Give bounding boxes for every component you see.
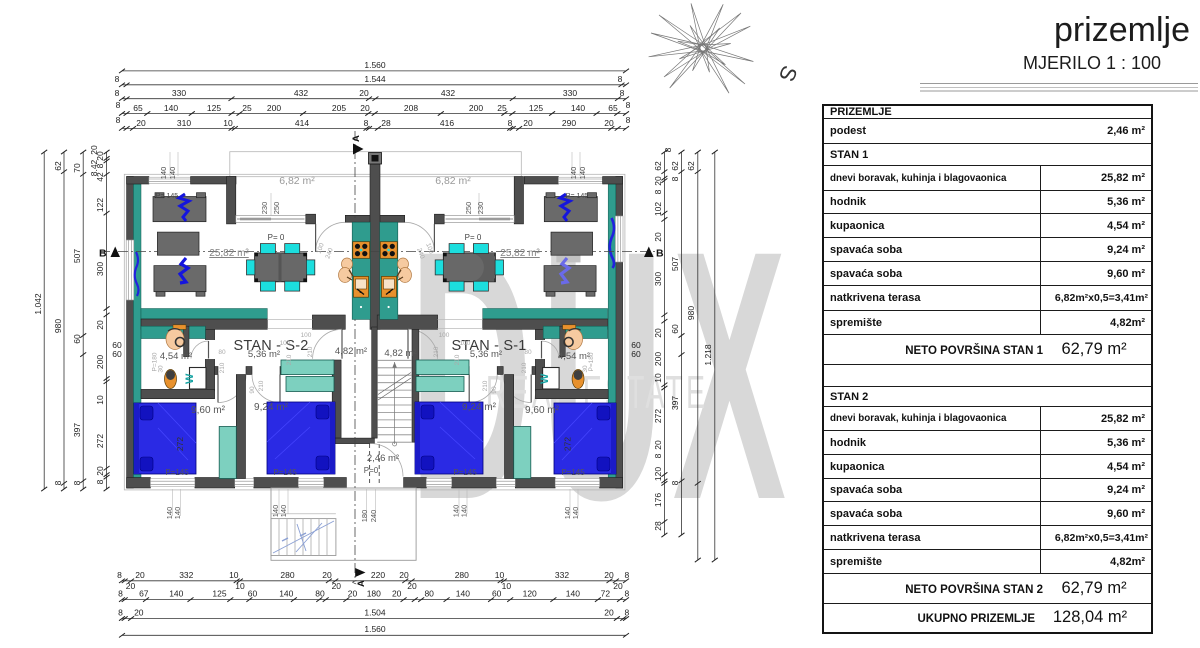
svg-text:9,24 m²: 9,24 m² bbox=[462, 402, 497, 413]
svg-text:P= 0: P= 0 bbox=[268, 233, 285, 242]
svg-text:8: 8 bbox=[364, 118, 369, 128]
svg-text:20: 20 bbox=[604, 118, 614, 128]
svg-text:8: 8 bbox=[653, 453, 663, 458]
svg-text:210: 210 bbox=[219, 362, 226, 373]
svg-text:180: 180 bbox=[367, 589, 381, 599]
svg-text:20: 20 bbox=[348, 589, 358, 599]
svg-text:250: 250 bbox=[272, 202, 281, 215]
svg-text:8: 8 bbox=[670, 176, 680, 181]
svg-text:140: 140 bbox=[279, 505, 288, 518]
svg-text:140: 140 bbox=[456, 589, 470, 599]
svg-text:P=145: P=145 bbox=[273, 468, 297, 477]
svg-text:8: 8 bbox=[118, 608, 123, 618]
svg-text:20: 20 bbox=[399, 570, 409, 580]
svg-text:330: 330 bbox=[563, 88, 577, 98]
svg-text:140: 140 bbox=[460, 505, 469, 518]
svg-text:140: 140 bbox=[571, 507, 580, 520]
svg-text:30: 30 bbox=[158, 365, 165, 373]
svg-text:20: 20 bbox=[360, 103, 370, 113]
svg-text:240: 240 bbox=[324, 247, 334, 260]
svg-text:<: < bbox=[352, 578, 357, 587]
svg-text:120: 120 bbox=[653, 467, 663, 481]
svg-text:125: 125 bbox=[529, 103, 543, 113]
svg-text:140: 140 bbox=[571, 103, 585, 113]
svg-text:20: 20 bbox=[95, 466, 105, 476]
svg-text:5,36 m²: 5,36 m² bbox=[470, 349, 502, 360]
svg-text:P=0: P=0 bbox=[364, 466, 379, 475]
svg-text:290: 290 bbox=[562, 118, 576, 128]
svg-text:1.042: 1.042 bbox=[33, 293, 43, 315]
svg-text:140: 140 bbox=[173, 507, 182, 520]
svg-text:90: 90 bbox=[249, 386, 256, 394]
svg-text:416: 416 bbox=[440, 118, 454, 128]
svg-text:250: 250 bbox=[464, 202, 473, 215]
svg-text:A: A bbox=[356, 580, 367, 587]
svg-text:6,82 m²: 6,82 m² bbox=[279, 175, 315, 187]
svg-text:210: 210 bbox=[482, 380, 489, 391]
svg-text:140: 140 bbox=[279, 589, 293, 599]
svg-text:1.560: 1.560 bbox=[364, 624, 386, 634]
svg-text:30: 30 bbox=[582, 365, 589, 373]
svg-text:140: 140 bbox=[578, 167, 587, 180]
svg-text:1.218: 1.218 bbox=[703, 344, 713, 366]
svg-text:397: 397 bbox=[72, 423, 82, 437]
svg-text:25,82 m²: 25,82 m² bbox=[500, 248, 540, 259]
svg-text:140: 140 bbox=[168, 167, 177, 180]
svg-text:20: 20 bbox=[653, 232, 663, 242]
svg-text:280: 280 bbox=[280, 570, 294, 580]
svg-text:20: 20 bbox=[613, 581, 623, 591]
svg-text:P=145: P=145 bbox=[165, 468, 189, 477]
svg-text:100: 100 bbox=[439, 332, 450, 339]
svg-text:1.560: 1.560 bbox=[364, 60, 386, 70]
svg-text:200: 200 bbox=[267, 103, 281, 113]
svg-text:272: 272 bbox=[563, 437, 573, 451]
svg-text:414: 414 bbox=[295, 118, 309, 128]
svg-text:20: 20 bbox=[653, 440, 663, 450]
svg-text:28: 28 bbox=[653, 521, 663, 531]
svg-text:9,60 m²: 9,60 m² bbox=[525, 405, 560, 416]
svg-text:100: 100 bbox=[460, 340, 471, 347]
svg-text:200: 200 bbox=[653, 352, 663, 366]
svg-text:272: 272 bbox=[653, 409, 663, 423]
svg-text:272: 272 bbox=[95, 434, 105, 448]
svg-text:8: 8 bbox=[618, 74, 623, 84]
svg-text:8: 8 bbox=[508, 118, 513, 128]
svg-text:90: 90 bbox=[491, 386, 498, 394]
svg-text:6,82 m²: 6,82 m² bbox=[435, 175, 471, 187]
svg-text:8.42: 8.42 bbox=[89, 159, 99, 176]
svg-text:8: 8 bbox=[626, 100, 631, 110]
svg-text:25,82 m²: 25,82 m² bbox=[209, 248, 249, 259]
svg-text:220: 220 bbox=[371, 570, 385, 580]
svg-text:125: 125 bbox=[207, 103, 221, 113]
svg-text:120: 120 bbox=[523, 589, 537, 599]
svg-text:140: 140 bbox=[566, 589, 580, 599]
svg-text:10: 10 bbox=[95, 395, 105, 405]
svg-text:9,24 m²: 9,24 m² bbox=[254, 402, 289, 413]
svg-text:8: 8 bbox=[625, 589, 630, 599]
svg-text:5,36 m²: 5,36 m² bbox=[248, 349, 280, 360]
svg-text:176: 176 bbox=[653, 493, 663, 507]
svg-text:60: 60 bbox=[112, 349, 122, 359]
svg-text:20: 20 bbox=[604, 570, 614, 580]
svg-text:80: 80 bbox=[424, 589, 434, 599]
svg-text:332: 332 bbox=[179, 570, 193, 580]
svg-text:330: 330 bbox=[172, 88, 186, 98]
svg-text:25: 25 bbox=[497, 103, 507, 113]
svg-text:200: 200 bbox=[95, 355, 105, 369]
svg-text:210: 210 bbox=[521, 362, 528, 373]
svg-text:70: 70 bbox=[72, 163, 82, 173]
svg-text:8: 8 bbox=[115, 88, 120, 98]
svg-text:8: 8 bbox=[95, 479, 105, 484]
svg-text:62: 62 bbox=[670, 161, 680, 171]
svg-text:60: 60 bbox=[72, 334, 82, 344]
svg-text:210: 210 bbox=[433, 346, 440, 357]
svg-text:332: 332 bbox=[555, 570, 569, 580]
svg-text:80: 80 bbox=[218, 349, 226, 356]
svg-text:8: 8 bbox=[116, 115, 121, 125]
svg-text:200: 200 bbox=[469, 103, 483, 113]
svg-text:10: 10 bbox=[653, 373, 663, 383]
svg-text:507: 507 bbox=[72, 249, 82, 263]
svg-text:25: 25 bbox=[242, 103, 252, 113]
svg-text:8: 8 bbox=[115, 74, 120, 84]
svg-text:122: 122 bbox=[95, 198, 105, 212]
svg-text:60: 60 bbox=[631, 349, 641, 359]
svg-text:20: 20 bbox=[392, 589, 402, 599]
svg-text:20: 20 bbox=[523, 118, 533, 128]
svg-text:240: 240 bbox=[369, 510, 378, 523]
svg-text:20: 20 bbox=[134, 608, 144, 618]
svg-text:205: 205 bbox=[332, 103, 346, 113]
svg-text:65: 65 bbox=[133, 103, 143, 113]
svg-text:20: 20 bbox=[653, 328, 663, 338]
svg-text:102: 102 bbox=[653, 202, 663, 216]
svg-text:62: 62 bbox=[653, 161, 663, 171]
svg-text:8: 8 bbox=[116, 100, 121, 110]
svg-text:230: 230 bbox=[476, 202, 485, 215]
svg-text:208: 208 bbox=[404, 103, 418, 113]
svg-text:1.504: 1.504 bbox=[364, 608, 386, 618]
svg-text:P=145: P=145 bbox=[453, 468, 477, 477]
svg-text:397: 397 bbox=[670, 396, 680, 410]
svg-text:P= 0: P= 0 bbox=[465, 233, 482, 242]
svg-text:8: 8 bbox=[117, 570, 122, 580]
svg-text:20: 20 bbox=[653, 176, 663, 186]
svg-text:4,54 m²: 4,54 m² bbox=[160, 351, 192, 362]
svg-text:20: 20 bbox=[135, 570, 145, 580]
svg-text:S: S bbox=[774, 62, 803, 85]
svg-text:60: 60 bbox=[248, 589, 258, 599]
svg-text:8: 8 bbox=[653, 189, 663, 194]
svg-text:P=145: P=145 bbox=[561, 468, 585, 477]
svg-text:8: 8 bbox=[625, 608, 630, 618]
svg-text:65: 65 bbox=[608, 103, 618, 113]
svg-text:300: 300 bbox=[653, 272, 663, 286]
svg-text:P=180: P=180 bbox=[588, 352, 595, 371]
svg-text:100: 100 bbox=[280, 340, 291, 347]
svg-text:310: 310 bbox=[177, 118, 191, 128]
svg-text:507: 507 bbox=[670, 257, 680, 271]
svg-text:4,54 m²: 4,54 m² bbox=[558, 351, 590, 362]
svg-text:140: 140 bbox=[569, 167, 578, 180]
svg-text:1.544: 1.544 bbox=[364, 74, 386, 84]
svg-text:P= 145: P= 145 bbox=[566, 193, 588, 200]
svg-text:60: 60 bbox=[492, 589, 502, 599]
svg-text:W: W bbox=[539, 373, 551, 384]
svg-text:140: 140 bbox=[164, 103, 178, 113]
svg-text:272: 272 bbox=[175, 437, 185, 451]
svg-text:8: 8 bbox=[118, 589, 123, 599]
svg-text:80: 80 bbox=[524, 349, 532, 356]
svg-text:230: 230 bbox=[260, 202, 269, 215]
svg-text:980: 980 bbox=[686, 306, 696, 320]
svg-text:432: 432 bbox=[441, 88, 455, 98]
svg-text:10: 10 bbox=[229, 570, 239, 580]
svg-text:A: A bbox=[351, 135, 362, 142]
svg-text:B: B bbox=[656, 248, 664, 260]
svg-text:280: 280 bbox=[455, 570, 469, 580]
svg-text:67: 67 bbox=[139, 589, 149, 599]
svg-text:P= 145: P= 145 bbox=[156, 193, 178, 200]
svg-text:62: 62 bbox=[686, 161, 696, 171]
svg-text:20: 20 bbox=[604, 608, 614, 618]
svg-text:10: 10 bbox=[502, 581, 512, 591]
svg-text:10: 10 bbox=[223, 118, 233, 128]
svg-text:140: 140 bbox=[169, 589, 183, 599]
svg-text:432: 432 bbox=[294, 88, 308, 98]
svg-text:20: 20 bbox=[136, 118, 146, 128]
svg-text:72: 72 bbox=[601, 589, 611, 599]
svg-text:4,82 m²: 4,82 m² bbox=[335, 346, 367, 357]
svg-text:W: W bbox=[184, 373, 196, 384]
svg-text:20: 20 bbox=[89, 145, 99, 155]
svg-text:B: B bbox=[99, 248, 107, 260]
svg-text:180: 180 bbox=[360, 510, 369, 523]
svg-text:210: 210 bbox=[307, 346, 314, 357]
svg-text:20: 20 bbox=[359, 88, 369, 98]
svg-text:300: 300 bbox=[95, 262, 105, 276]
svg-text:28: 28 bbox=[381, 118, 391, 128]
svg-text:2,46 m²: 2,46 m² bbox=[367, 453, 399, 464]
svg-text:20: 20 bbox=[322, 570, 332, 580]
svg-text:62: 62 bbox=[53, 161, 63, 171]
svg-text:20: 20 bbox=[126, 581, 136, 591]
svg-text:140: 140 bbox=[159, 167, 168, 180]
svg-text:210: 210 bbox=[454, 354, 461, 365]
svg-text:100: 100 bbox=[301, 332, 312, 339]
svg-text:210: 210 bbox=[258, 380, 265, 391]
svg-text:10: 10 bbox=[235, 581, 245, 591]
svg-text:9,60 m²: 9,60 m² bbox=[191, 405, 226, 416]
svg-text:60: 60 bbox=[670, 324, 680, 334]
svg-text:125: 125 bbox=[212, 589, 226, 599]
svg-text:80: 80 bbox=[315, 589, 325, 599]
svg-text:980: 980 bbox=[53, 319, 63, 333]
svg-text:210: 210 bbox=[286, 354, 293, 365]
svg-text:8: 8 bbox=[626, 115, 631, 125]
svg-text:4,82 m²: 4,82 m² bbox=[384, 348, 416, 359]
svg-text:20: 20 bbox=[95, 320, 105, 330]
